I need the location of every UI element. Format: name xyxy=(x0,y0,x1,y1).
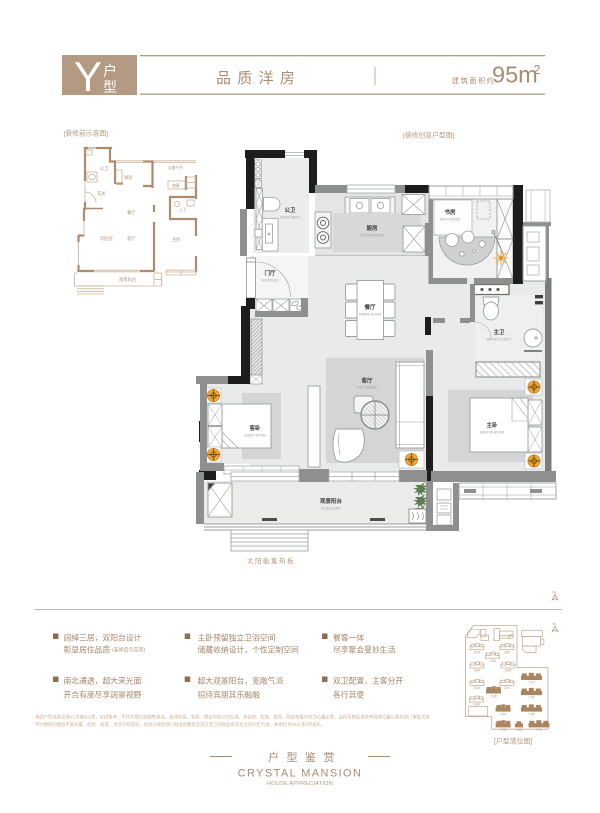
svg-text:G4#: G4# xyxy=(474,669,481,673)
svg-text:G6#: G6# xyxy=(474,686,481,690)
svg-text:HOUSE APPRECIATION: HOUSE APPRECIATION xyxy=(267,781,333,787)
svg-text:储藏: 储藏 xyxy=(172,183,180,188)
svg-text:主卫: 主卫 xyxy=(493,328,505,336)
svg-text:N: N xyxy=(553,590,556,595)
svg-text:THE LOUNGE: THE LOUNGE xyxy=(357,386,378,390)
svg-text:书房: 书房 xyxy=(444,208,456,216)
svg-text:GUEST BATH: GUEST BATH xyxy=(280,216,301,220)
svg-text:Y6#: Y6# xyxy=(516,728,522,732)
svg-text:不同楼栋的楼层平面布置、结构、面宽、进深均有差别，具体以政府: 不同楼栋的楼层平面布置、结构、面宽、进深均有差别，具体以政府部门批准的图纸及双方… xyxy=(35,721,325,728)
svg-text:南北通透，超大采光面: 南北通透，超大采光面 xyxy=(64,676,142,686)
svg-text:Y7#: Y7# xyxy=(536,728,542,732)
svg-text:餐厅: 餐厅 xyxy=(363,303,376,311)
svg-text:Y7#: Y7# xyxy=(500,728,506,732)
svg-text:2: 2 xyxy=(534,63,541,77)
svg-text:餐厅: 餐厅 xyxy=(127,209,136,216)
svg-text:Y2#: Y2# xyxy=(528,696,534,700)
svg-text:各行其便: 各行其便 xyxy=(333,689,364,699)
svg-text:门厅: 门厅 xyxy=(264,269,276,277)
svg-text:型: 型 xyxy=(103,79,117,95)
svg-text:上卫: 上卫 xyxy=(179,207,187,212)
svg-text:建筑面积约: 建筑面积约 xyxy=(452,76,496,85)
svg-text:储藏收纳设计，个性定制空间: 储藏收纳设计，个性定制空间 xyxy=(198,644,300,654)
svg-text:CRYSTAL MANSION: CRYSTAL MANSION xyxy=(238,768,363,780)
svg-text:G9#: G9# xyxy=(473,703,480,707)
svg-text:客厅: 客厅 xyxy=(360,377,373,385)
svg-text:Y: Y xyxy=(74,53,102,100)
svg-text:户型鉴赏: 户型鉴赏 xyxy=(268,750,342,764)
svg-text:KITCHEN ROOM: KITCHEN ROOM xyxy=(360,234,385,238)
svg-text:超大观景阳台，宽敞气派: 超大观景阳台，宽敞气派 xyxy=(198,676,284,686)
svg-text:DINING ROOM: DINING ROOM xyxy=(359,313,381,317)
svg-text:次卧室: 次卧室 xyxy=(100,235,114,242)
svg-text:VESTIBULE: VESTIBULE xyxy=(261,279,279,283)
svg-text:WATER CLOSET: WATER CLOSET xyxy=(487,338,512,342)
svg-text:厨房: 厨房 xyxy=(124,174,133,181)
svg-text:双卫配置，主客分开: 双卫配置，主客分开 xyxy=(333,676,403,686)
svg-text:阔绰三居，双阳台设计: 阔绰三居，双阳台设计 xyxy=(64,633,142,643)
svg-text:公卫: 公卫 xyxy=(284,207,296,214)
svg-text:Y1#: Y1# xyxy=(528,681,534,685)
svg-text:餐客一体: 餐客一体 xyxy=(333,633,364,643)
svg-text:G5#: G5# xyxy=(489,659,496,663)
svg-text:G8#: G8# xyxy=(505,669,512,673)
svg-text:G6#: G6# xyxy=(504,651,511,655)
svg-text:[户型落位图]: [户型落位图] xyxy=(494,737,532,746)
svg-text:Y4#: Y4# xyxy=(500,712,506,716)
svg-text:MASTER ROOM: MASTER ROOM xyxy=(480,431,504,435)
svg-text:Y3#: Y3# xyxy=(490,694,496,698)
svg-text:[装修前示意图]: [装修前示意图] xyxy=(64,129,109,138)
svg-text:主卧: 主卧 xyxy=(486,421,498,429)
svg-text:品质洋房: 品质洋房 xyxy=(216,70,301,87)
svg-text:[装修创意户型图]: [装修创意户型图] xyxy=(403,131,454,140)
svg-text:观景阳台: 观景阳台 xyxy=(119,276,136,283)
svg-text:客厅: 客厅 xyxy=(127,235,136,242)
svg-text:观景阳台: 观景阳台 xyxy=(320,497,343,505)
svg-text:开合有度尽享阔景视野: 开合有度尽享阔景视野 xyxy=(64,689,142,699)
svg-text:公卫: 公卫 xyxy=(100,166,109,171)
svg-text:本图户型选取见湘Y1号楼801室，仅供参考，不作为要约或销售: 本图户型选取见湘Y1号楼801室，仅供参考，不作为要约或销售承诺，具体信息、家具… xyxy=(35,714,430,721)
svg-text:主卧预留独立卫浴空间: 主卧预留独立卫浴空间 xyxy=(198,633,276,643)
svg-text:厨房: 厨房 xyxy=(366,224,378,232)
svg-text:设备平台: 设备平台 xyxy=(168,165,183,170)
svg-text:太阳能集热板: 太阳能集热板 xyxy=(247,556,295,565)
svg-text:主卧: 主卧 xyxy=(172,236,181,243)
svg-text:户: 户 xyxy=(103,63,117,79)
svg-text:G2#: G2# xyxy=(474,651,481,655)
svg-text:尽享聚会曼妙生活: 尽享聚会曼妙生活 xyxy=(333,644,396,654)
svg-text:N: N xyxy=(553,621,556,626)
svg-text:客卧: 客卧 xyxy=(248,424,261,432)
svg-text:Y5#: Y5# xyxy=(528,712,534,716)
svg-text:G7#: G7# xyxy=(504,686,511,690)
svg-text:(装修后可实现): (装修后可实现) xyxy=(112,646,146,653)
svg-text:MULTI ROOM: MULTI ROOM xyxy=(440,218,460,222)
svg-text:彰显居住品质: 彰显居住品质 xyxy=(64,644,111,654)
svg-text:玄关: 玄关 xyxy=(97,190,106,197)
svg-text:GUEST ROOM: GUEST ROOM xyxy=(244,434,266,438)
svg-text:招待宾朋其乐融融: 招待宾朋其乐融融 xyxy=(198,689,261,699)
svg-text:95m: 95m xyxy=(492,62,538,88)
svg-text:TC BALCONY: TC BALCONY xyxy=(321,507,342,511)
